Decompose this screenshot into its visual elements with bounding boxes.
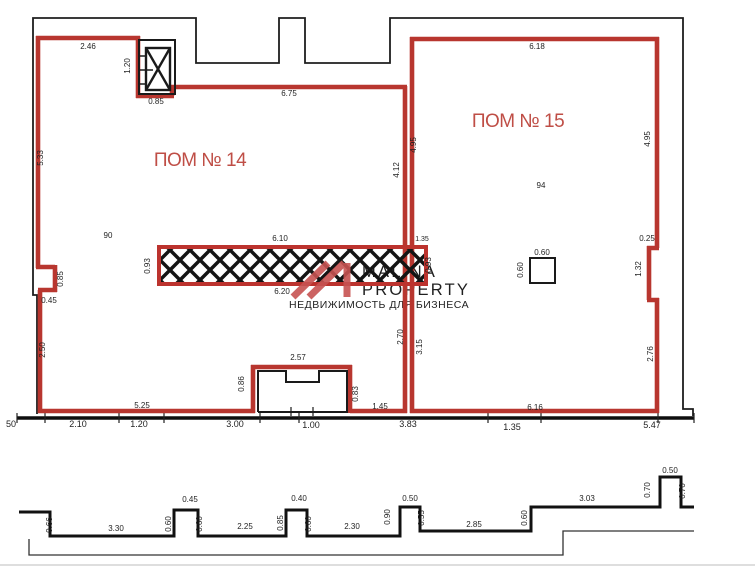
- svg-text:1.00: 1.00: [302, 420, 320, 430]
- svg-text:0.85: 0.85: [56, 271, 65, 287]
- svg-text:0.86: 0.86: [237, 376, 246, 392]
- svg-text:6.16: 6.16: [527, 403, 543, 412]
- svg-text:6.75: 6.75: [281, 89, 297, 98]
- svg-text:0.40: 0.40: [291, 494, 307, 503]
- svg-text:2.10: 2.10: [69, 419, 87, 429]
- svg-text:0.60: 0.60: [516, 262, 525, 278]
- svg-text:50: 50: [6, 419, 16, 429]
- svg-text:1.35: 1.35: [415, 236, 429, 243]
- svg-text:3.00: 3.00: [226, 419, 244, 429]
- svg-text:5.33: 5.33: [36, 150, 45, 166]
- svg-text:3.15: 3.15: [415, 339, 424, 355]
- svg-text:3.30: 3.30: [108, 524, 124, 533]
- svg-text:НЕДВИЖИМОСТЬ ДЛЯ БИЗНЕСА: НЕДВИЖИМОСТЬ ДЛЯ БИЗНЕСА: [289, 299, 469, 311]
- svg-text:4.95: 4.95: [643, 131, 652, 147]
- svg-text:1.32: 1.32: [634, 261, 643, 277]
- svg-text:4.95: 4.95: [409, 137, 418, 153]
- svg-text:0.60: 0.60: [520, 510, 529, 526]
- svg-text:1.35: 1.35: [503, 422, 521, 432]
- svg-text:3.83: 3.83: [399, 419, 417, 429]
- svg-text:3.03: 3.03: [579, 494, 595, 503]
- svg-text:4.12: 4.12: [392, 162, 401, 178]
- svg-text:0.93: 0.93: [424, 257, 433, 273]
- svg-text:1.20: 1.20: [130, 419, 148, 429]
- svg-text:6.10: 6.10: [272, 234, 288, 243]
- svg-text:1.20: 1.20: [123, 58, 132, 74]
- svg-text:0.25: 0.25: [639, 234, 655, 243]
- svg-text:5.25: 5.25: [134, 401, 150, 410]
- svg-text:2.57: 2.57: [290, 353, 306, 362]
- svg-text:0.60: 0.60: [195, 516, 204, 532]
- svg-text:0.50: 0.50: [662, 466, 678, 475]
- svg-text:2.30: 2.30: [344, 522, 360, 531]
- svg-text:0.55: 0.55: [417, 510, 426, 526]
- svg-text:0.93: 0.93: [143, 258, 152, 274]
- svg-text:2.76: 2.76: [646, 346, 655, 362]
- svg-text:0.85: 0.85: [148, 97, 164, 106]
- svg-text:6.18: 6.18: [529, 42, 545, 51]
- svg-text:0.45: 0.45: [41, 296, 57, 305]
- svg-text:6.20: 6.20: [274, 287, 290, 296]
- svg-text:ПОМ № 14: ПОМ № 14: [154, 150, 247, 171]
- svg-text:5.47: 5.47: [643, 420, 661, 430]
- svg-text:0.60: 0.60: [534, 248, 550, 257]
- svg-text:94: 94: [537, 181, 546, 190]
- svg-text:0.50: 0.50: [402, 494, 418, 503]
- svg-text:2.70: 2.70: [396, 329, 405, 345]
- svg-text:0.83: 0.83: [351, 386, 360, 402]
- svg-text:2.85: 2.85: [466, 520, 482, 529]
- svg-text:2.50: 2.50: [38, 342, 47, 358]
- svg-text:0.66: 0.66: [45, 517, 54, 533]
- svg-text:0.85: 0.85: [276, 515, 285, 531]
- svg-text:1.45: 1.45: [372, 402, 388, 411]
- svg-text:0.90: 0.90: [383, 509, 392, 525]
- svg-text:2.46: 2.46: [80, 42, 96, 51]
- svg-text:ПОМ № 15: ПОМ № 15: [472, 111, 564, 132]
- svg-text:90: 90: [104, 231, 113, 240]
- svg-text:2.25: 2.25: [237, 522, 253, 531]
- svg-text:0.70: 0.70: [643, 482, 652, 498]
- svg-text:0.45: 0.45: [182, 495, 198, 504]
- svg-text:0.70: 0.70: [678, 483, 687, 499]
- svg-text:0.60: 0.60: [304, 516, 313, 532]
- svg-text:0.60: 0.60: [164, 516, 173, 532]
